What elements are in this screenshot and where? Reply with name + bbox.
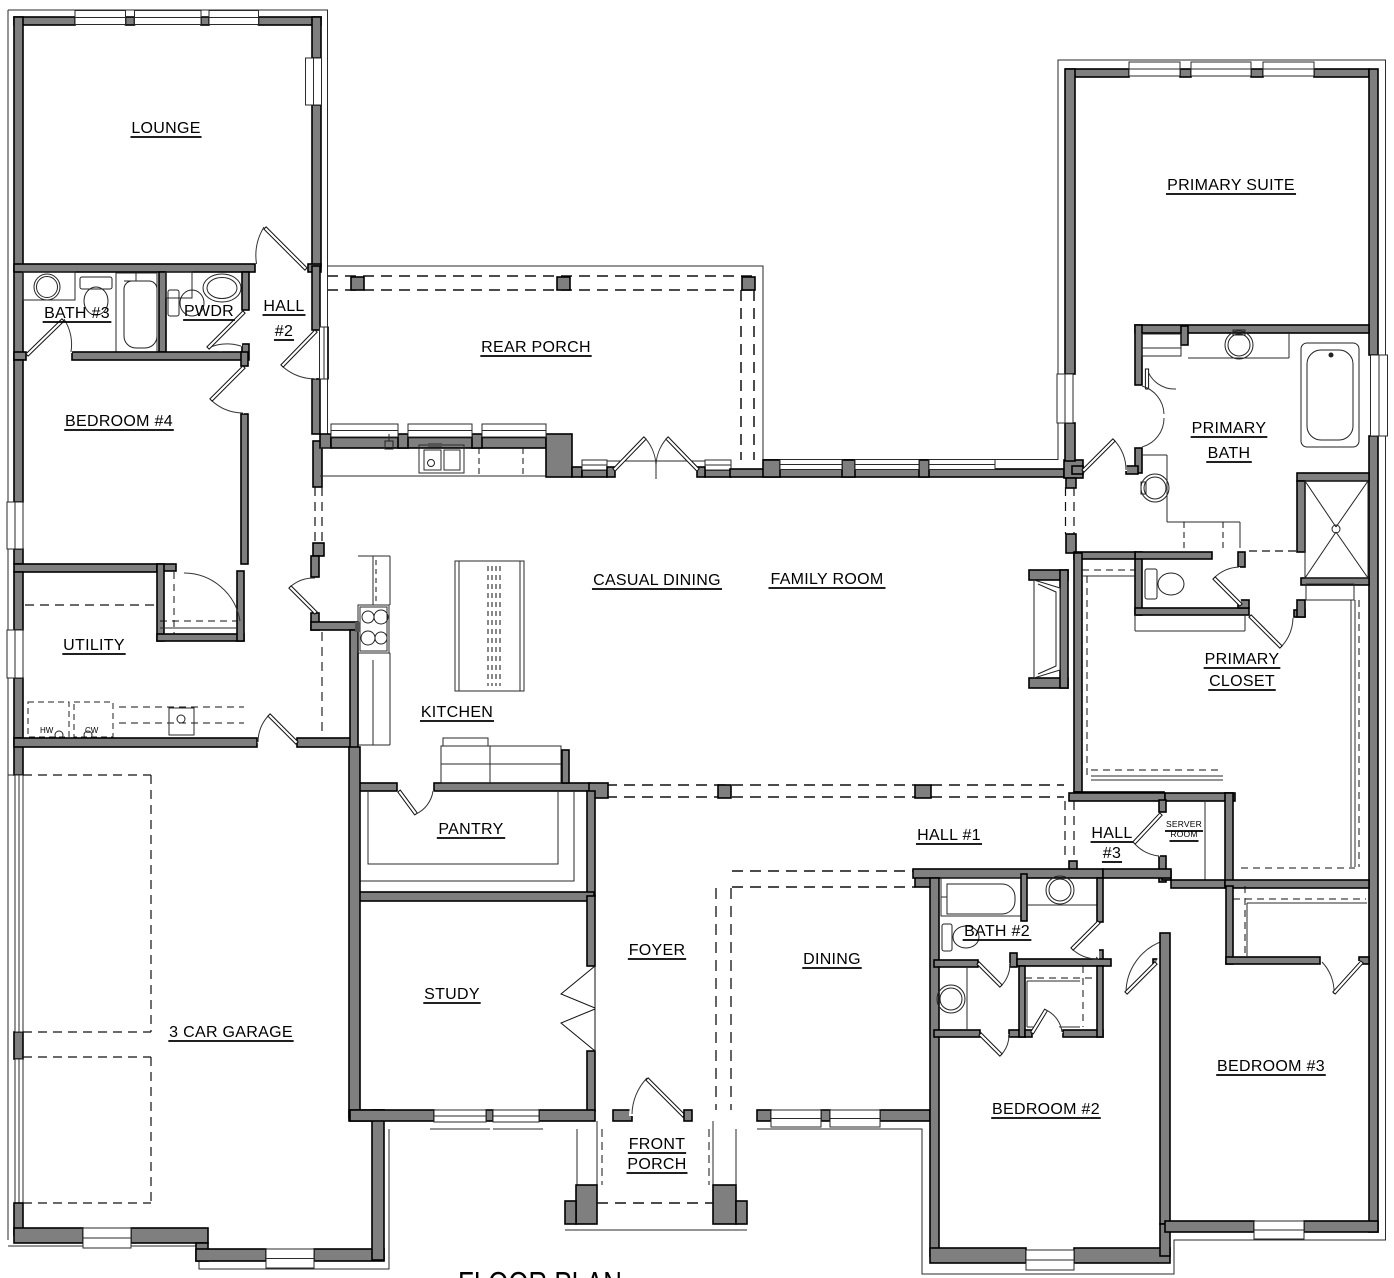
- svg-text:CASUAL DINING: CASUAL DINING: [593, 572, 721, 589]
- svg-text:CLOSET: CLOSET: [1209, 673, 1275, 690]
- svg-text:PRIMARY SUITE: PRIMARY SUITE: [1167, 177, 1295, 194]
- svg-text:HW: HW: [40, 726, 54, 735]
- svg-text:3 CAR GARAGE: 3 CAR GARAGE: [169, 1024, 293, 1041]
- svg-text:STUDY: STUDY: [424, 986, 480, 1003]
- svg-text:#3: #3: [1103, 845, 1121, 862]
- svg-text:DINING: DINING: [803, 951, 861, 968]
- svg-text:ROOM: ROOM: [1170, 829, 1197, 839]
- svg-text:BATH #2: BATH #2: [964, 923, 1030, 940]
- svg-text:FLOOR PLAN: FLOOR PLAN: [458, 1265, 622, 1278]
- svg-text:BEDROOM #2: BEDROOM #2: [992, 1101, 1100, 1118]
- svg-text:PORCH: PORCH: [627, 1156, 686, 1173]
- svg-text:#2: #2: [275, 323, 293, 340]
- svg-text:KITCHEN: KITCHEN: [421, 704, 493, 721]
- svg-text:SERVER: SERVER: [1166, 819, 1202, 829]
- svg-text:REAR PORCH: REAR PORCH: [481, 339, 591, 356]
- svg-text:BATH #3: BATH #3: [44, 305, 110, 322]
- svg-text:PWDR: PWDR: [184, 303, 234, 320]
- svg-text:FAMILY ROOM: FAMILY ROOM: [771, 571, 884, 588]
- svg-text:PANTRY: PANTRY: [438, 821, 503, 838]
- svg-text:BEDROOM #3: BEDROOM #3: [1217, 1058, 1325, 1075]
- svg-text:UTILITY: UTILITY: [63, 637, 125, 654]
- svg-text:BATH: BATH: [1208, 445, 1251, 462]
- svg-text:HALL: HALL: [1091, 825, 1132, 842]
- svg-text:PRIMARY: PRIMARY: [1205, 651, 1280, 668]
- svg-text:FRONT: FRONT: [629, 1136, 686, 1153]
- svg-text:HALL: HALL: [263, 298, 304, 315]
- svg-text:FOYER: FOYER: [629, 942, 686, 959]
- svg-text:HALL #1: HALL #1: [917, 827, 981, 844]
- svg-text:BEDROOM #4: BEDROOM #4: [65, 413, 173, 430]
- svg-text:LOUNGE: LOUNGE: [131, 120, 200, 137]
- svg-text:PRIMARY: PRIMARY: [1192, 420, 1267, 437]
